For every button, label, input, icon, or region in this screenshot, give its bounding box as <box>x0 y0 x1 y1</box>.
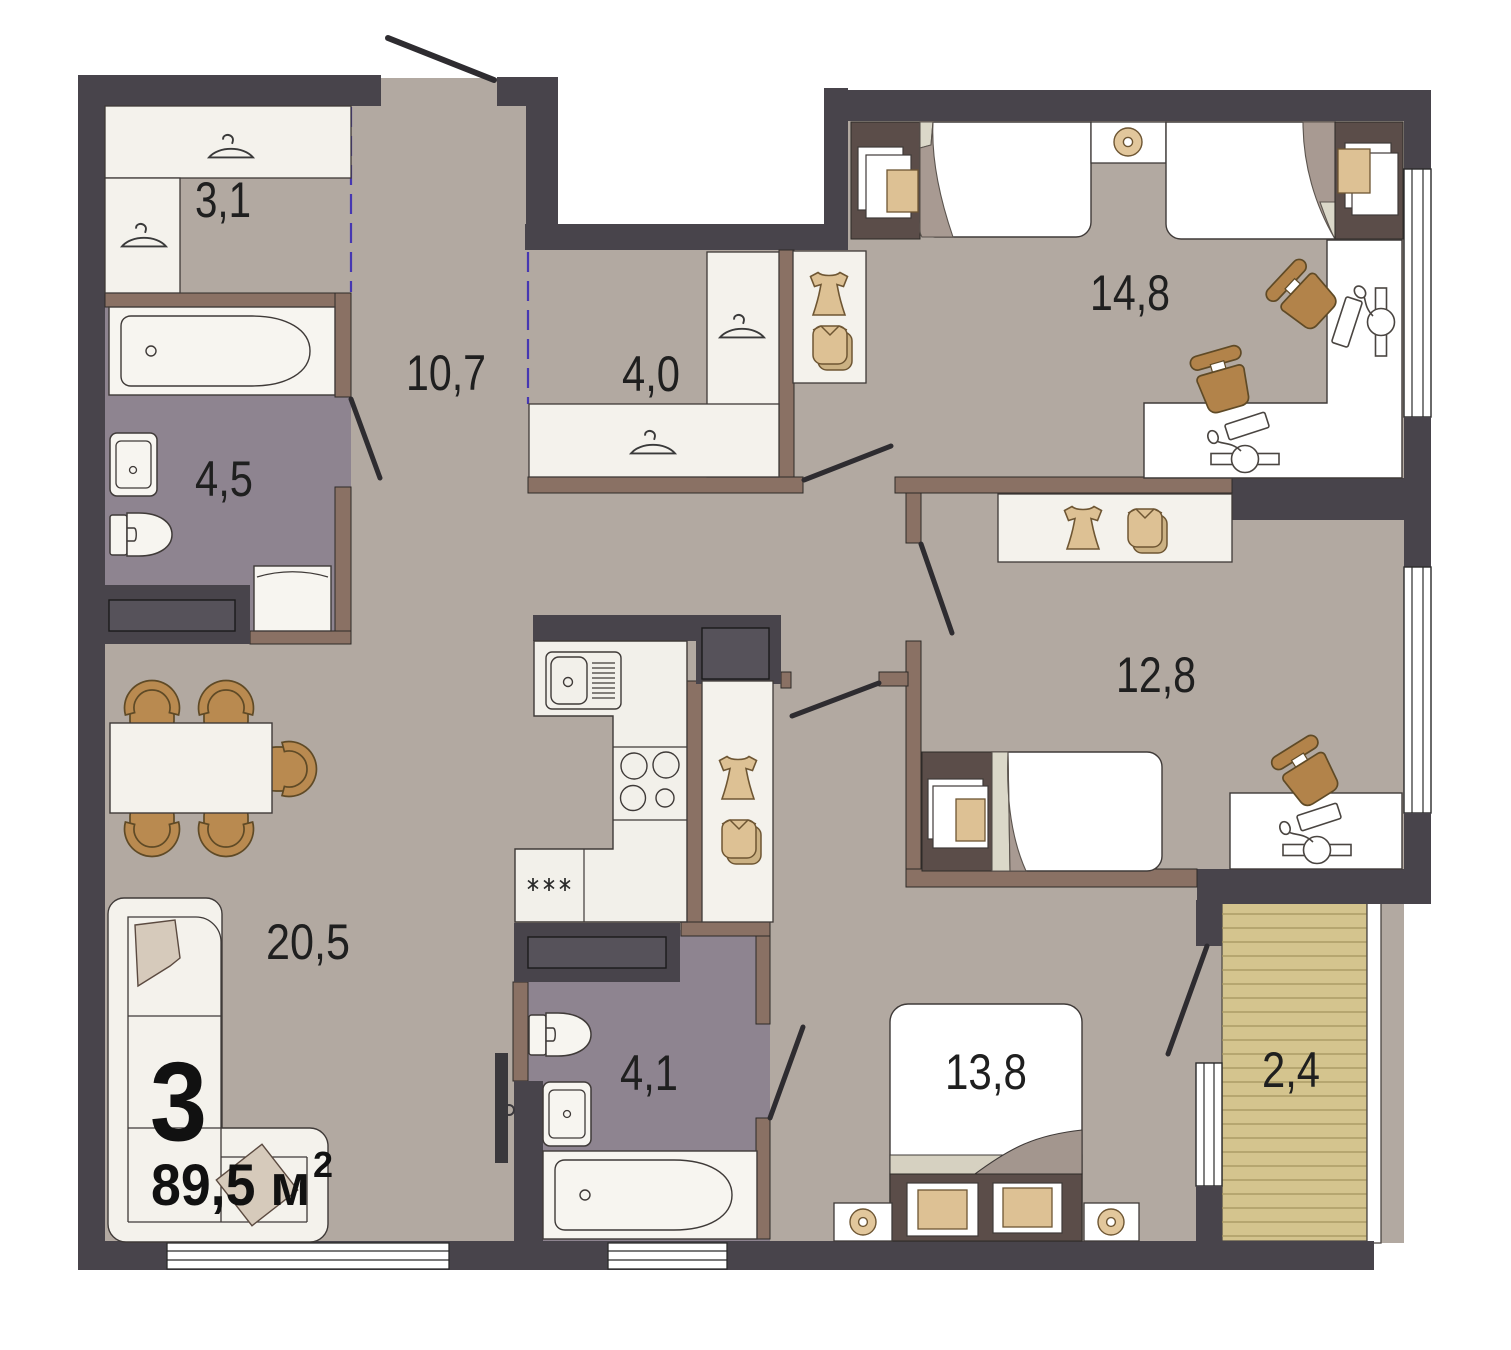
svg-text:20,5: 20,5 <box>266 914 350 970</box>
svg-text:14,8: 14,8 <box>1090 265 1170 321</box>
svg-text:3: 3 <box>150 1039 207 1164</box>
svg-text:10,7: 10,7 <box>406 345 486 401</box>
svg-text:4,1: 4,1 <box>620 1045 678 1101</box>
svg-text:12,8: 12,8 <box>1116 647 1196 703</box>
svg-text:2,4: 2,4 <box>1262 1042 1320 1098</box>
svg-text:2: 2 <box>313 1144 333 1185</box>
svg-text:4,0: 4,0 <box>622 346 680 402</box>
svg-text:13,8: 13,8 <box>945 1044 1027 1100</box>
svg-text:3,1: 3,1 <box>195 172 251 228</box>
svg-text:4,5: 4,5 <box>195 451 253 507</box>
svg-text:89,5 м: 89,5 м <box>151 1153 310 1218</box>
